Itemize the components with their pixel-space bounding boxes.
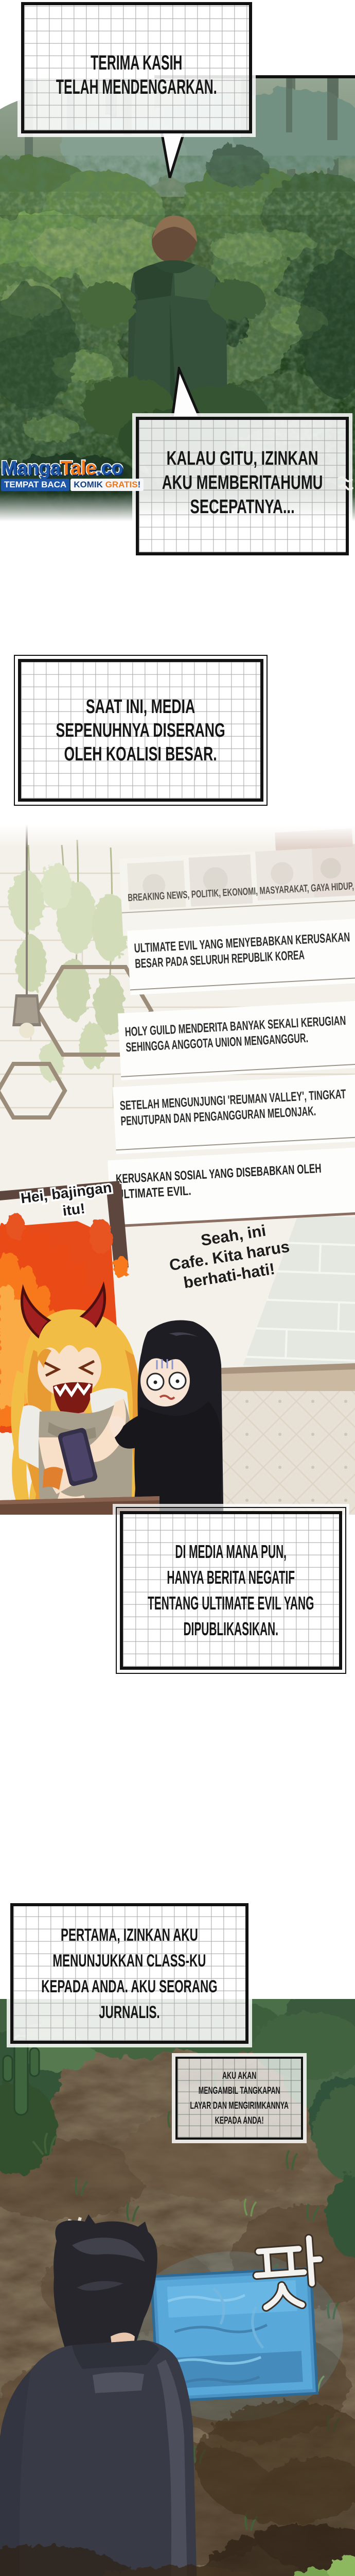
svg-text:itu!: itu!	[62, 1200, 86, 1219]
